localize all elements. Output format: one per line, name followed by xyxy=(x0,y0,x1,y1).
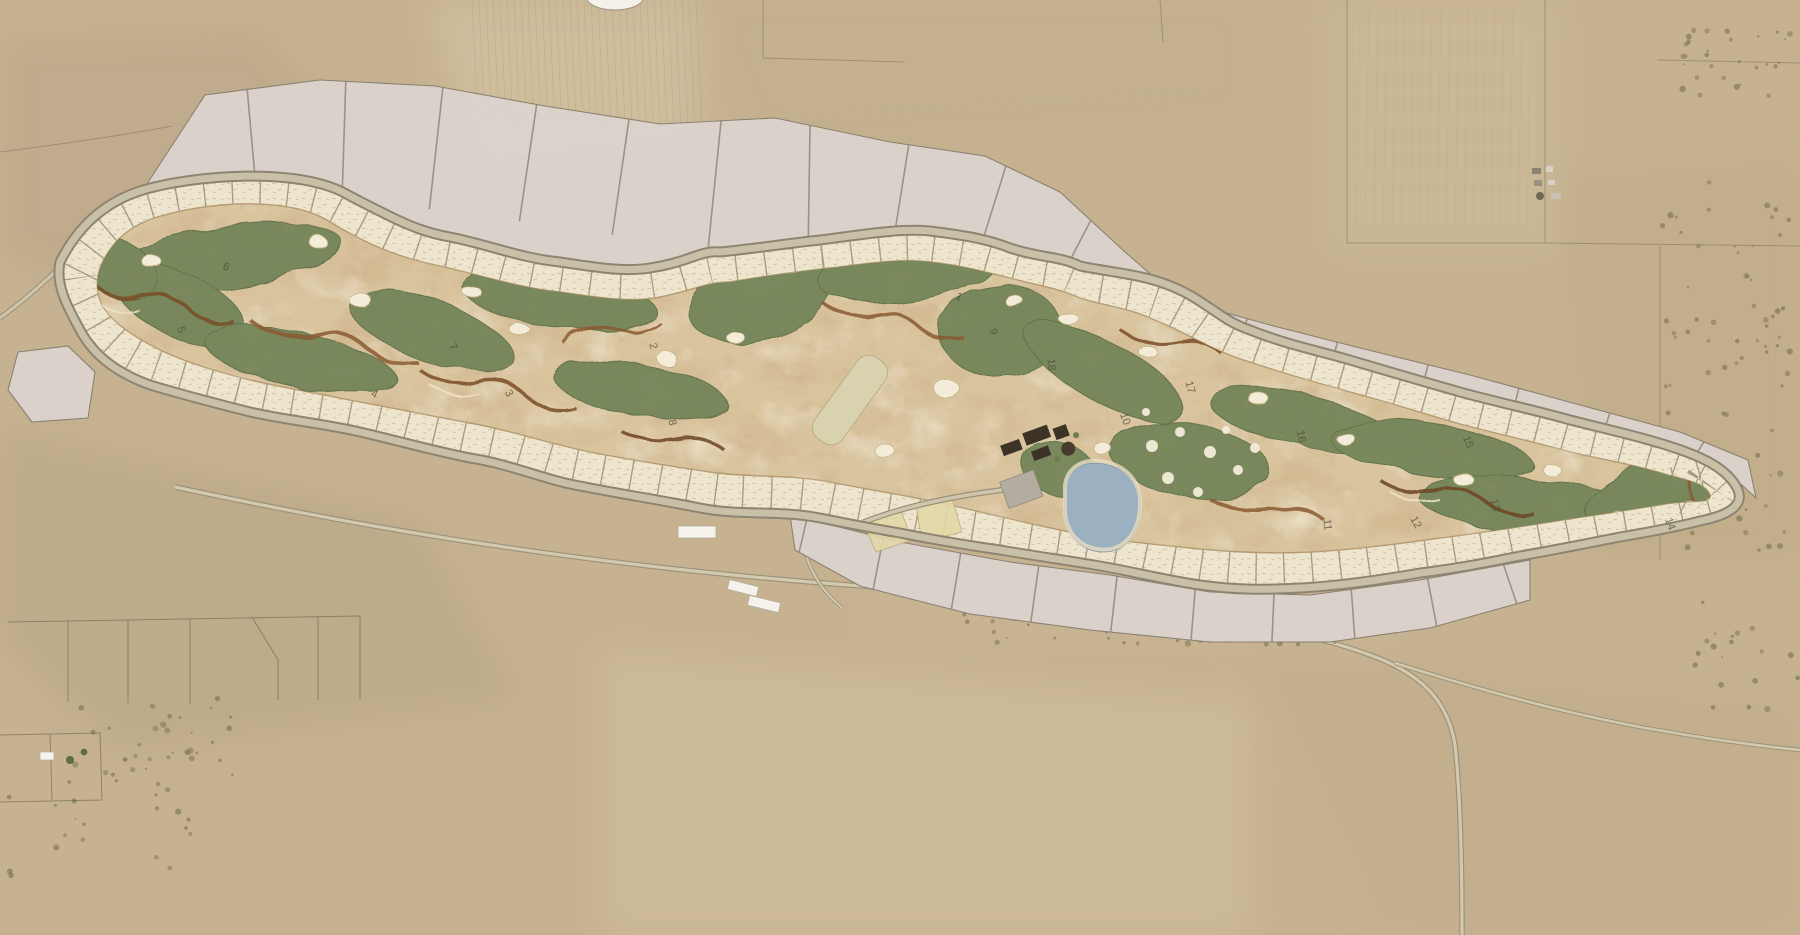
hole-11-label: 11 xyxy=(1321,519,1334,531)
pond xyxy=(1065,461,1140,552)
hole-18-label: 18 xyxy=(1044,358,1057,371)
golf-master-plan: 123456789101112131415161718 xyxy=(0,0,1800,935)
hole-16-label: 16 xyxy=(1294,429,1308,443)
site-plan-map: 123456789101112131415161718 xyxy=(0,0,1800,935)
